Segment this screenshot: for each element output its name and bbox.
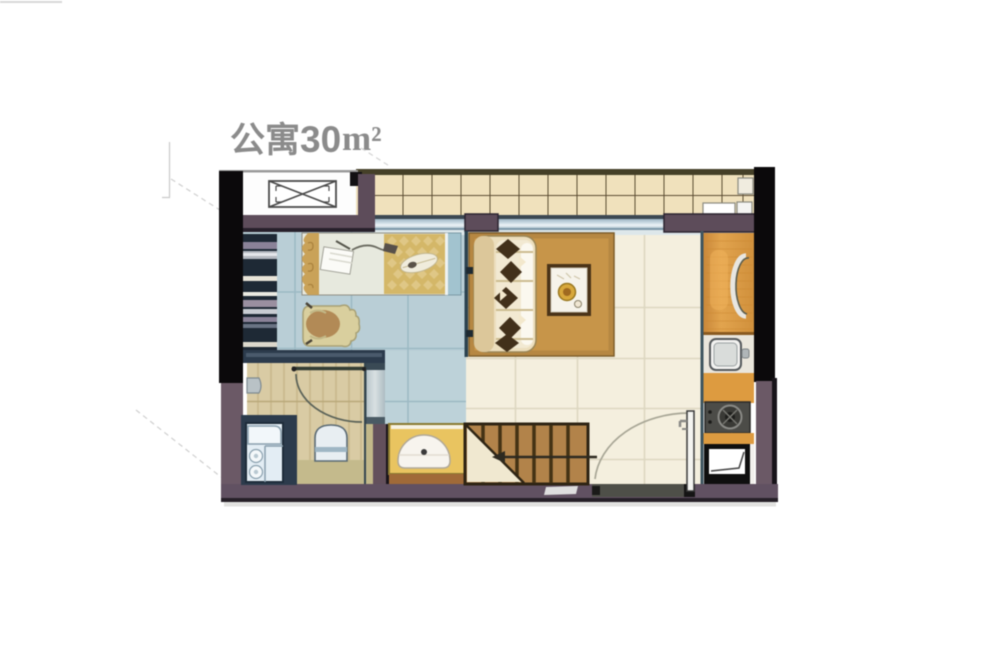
svg-text:公寓30: 公寓30 bbox=[230, 119, 341, 160]
svg-text:m²: m² bbox=[342, 119, 382, 158]
